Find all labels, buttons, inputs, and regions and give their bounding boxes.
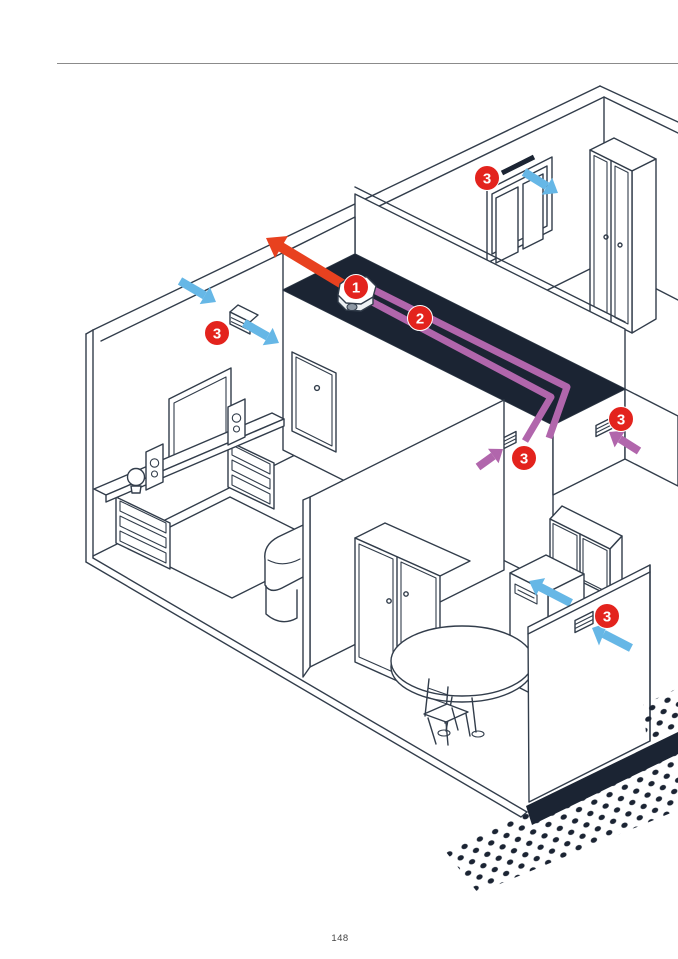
wardrobe-bedroom	[590, 138, 656, 333]
document-page: 1 2 3 3 3 3 3	[0, 0, 678, 959]
speaker-right	[228, 399, 245, 445]
svg-text:3: 3	[520, 451, 528, 468]
dining-table	[391, 626, 533, 737]
badge-vent-hall-right: 3	[609, 407, 634, 432]
svg-text:3: 3	[483, 171, 491, 188]
svg-text:3: 3	[617, 412, 625, 429]
badge-vent-outer-wall: 3	[595, 604, 620, 629]
svg-text:1: 1	[352, 280, 360, 297]
ventilation-isometric-diagram: 1 2 3 3 3 3 3	[0, 0, 678, 959]
page-number: 148	[308, 933, 372, 944]
svg-text:3: 3	[603, 609, 611, 626]
speaker-left	[146, 444, 163, 490]
badge-unit: 1	[344, 275, 369, 300]
badge-vent-window: 3	[475, 166, 500, 191]
badge-duct: 2	[408, 306, 433, 331]
badge-vent-left-wall: 3	[205, 321, 230, 346]
badge-vent-hall: 3	[512, 446, 537, 471]
svg-text:3: 3	[213, 326, 221, 343]
svg-text:2: 2	[416, 311, 424, 328]
